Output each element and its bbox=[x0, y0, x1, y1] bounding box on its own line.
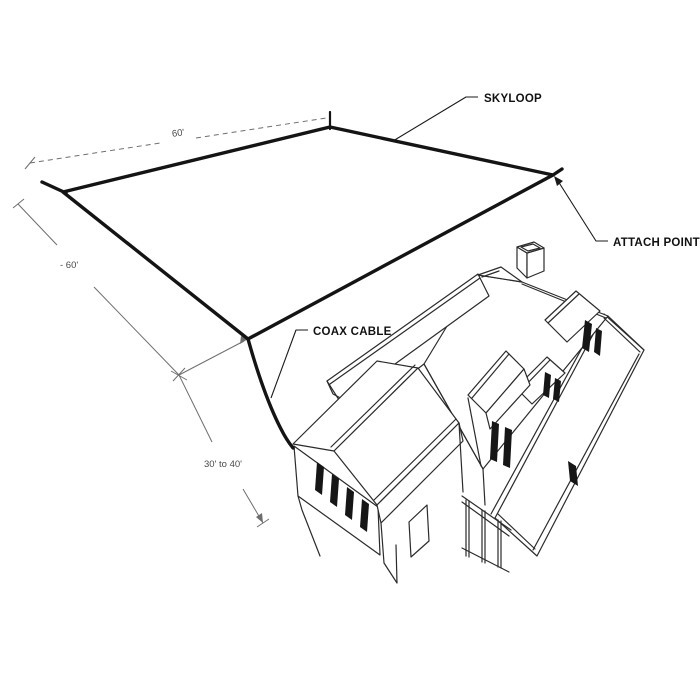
dimension-label-height: 30' to 40' bbox=[204, 459, 242, 470]
callout-skyloop: SKYLOOP bbox=[393, 93, 542, 141]
dimension-pointer-line bbox=[179, 341, 244, 375]
leader-line bbox=[558, 181, 608, 241]
dimension-line bbox=[179, 375, 212, 442]
dimension-line bbox=[94, 287, 179, 375]
leader-line bbox=[393, 97, 478, 141]
dimension-left-60ft: - 60' bbox=[13, 199, 187, 381]
corner-post-line bbox=[483, 469, 485, 505]
arrowhead-ground bbox=[256, 513, 263, 523]
dimension-line bbox=[18, 204, 57, 245]
dimension-end-tick bbox=[25, 157, 35, 169]
chimney bbox=[517, 242, 544, 278]
skyloop-antenna-diagram: 60' - 60' 30' to 40' bbox=[0, 0, 700, 700]
wire-tail-left bbox=[42, 182, 66, 193]
wire-tail-right bbox=[553, 169, 562, 175]
garage-door bbox=[409, 505, 429, 557]
callout-label-coax-cable: COAX CABLE bbox=[313, 326, 392, 338]
callout-label-skyloop: SKYLOOP bbox=[484, 93, 542, 105]
arrowhead-attach-point bbox=[554, 176, 563, 186]
garage-wing bbox=[293, 361, 463, 583]
dimension-top-60ft: 60' bbox=[25, 118, 326, 169]
leader-line bbox=[271, 330, 308, 398]
dimension-label-top: 60' bbox=[171, 127, 185, 140]
dimension-label-left: - 60' bbox=[60, 260, 78, 271]
callout-label-attach-point: ATTACH POINT bbox=[613, 237, 700, 249]
house-drawing bbox=[293, 242, 644, 583]
dimension-line bbox=[30, 143, 160, 163]
diagram-canvas: 60' - 60' 30' to 40' bbox=[0, 0, 700, 700]
callout-attach-point: ATTACH POINT bbox=[554, 176, 700, 249]
wall-bottom-edge bbox=[381, 523, 397, 583]
dimension-line bbox=[196, 118, 326, 138]
dimension-end-tick bbox=[13, 199, 24, 208]
